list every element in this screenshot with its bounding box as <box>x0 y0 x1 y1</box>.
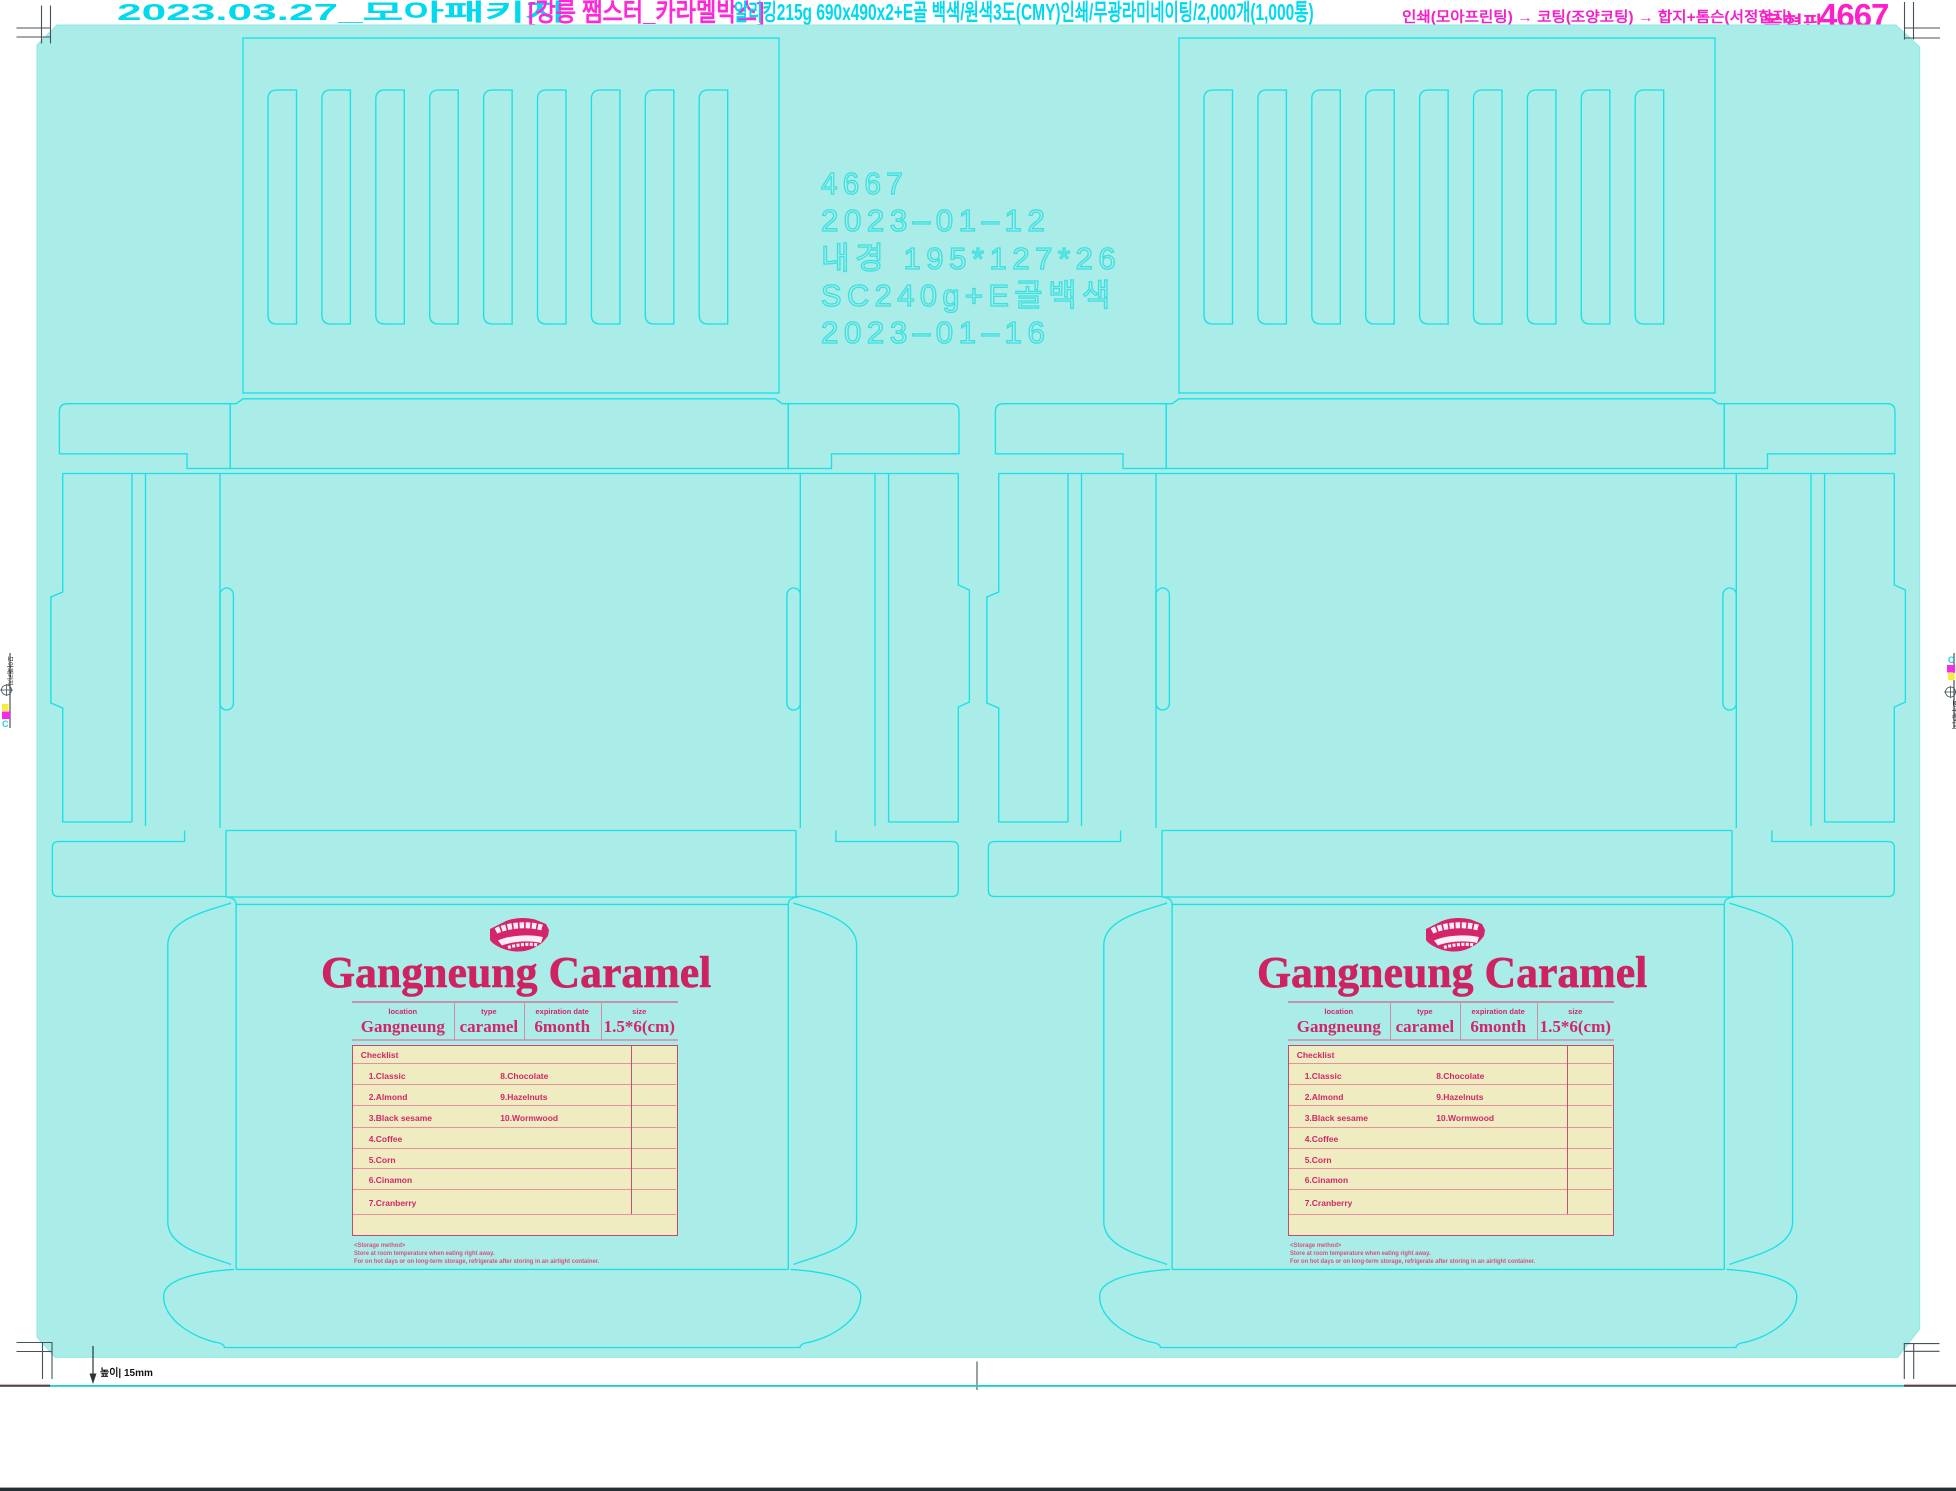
svg-text:C: C <box>1948 655 1955 665</box>
svg-text:C: C <box>2 719 9 729</box>
svg-text:모아패키지: 모아패키지 <box>6 656 15 686</box>
svg-text:모아패키지: 모아패키지 <box>1951 700 1956 730</box>
